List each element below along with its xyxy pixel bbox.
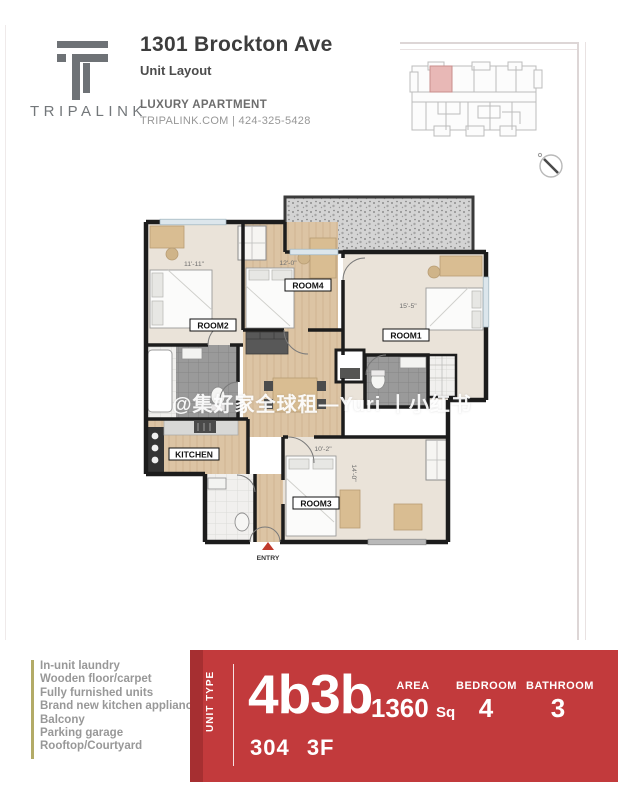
banner-divider [233, 664, 234, 766]
room2-chair [166, 248, 178, 260]
bathroom-stat: BATHROOM 3 [526, 680, 590, 724]
room3-width-dim: 10'-2" [314, 446, 332, 453]
bathroom-label: BATHROOM [526, 680, 590, 692]
left-edge-line [5, 25, 6, 640]
header: 1301 Brockton Ave Unit Layout LUXURY APA… [140, 33, 333, 127]
bathroom1-sink [400, 357, 426, 368]
laundry-label: LNDRY [340, 361, 360, 367]
washer [340, 368, 360, 379]
couch [246, 332, 288, 354]
contact-info: TRIPALINK.COM | 424-325-5428 [140, 115, 333, 127]
bedroom-stat: BEDROOM 4 [456, 680, 516, 724]
stove [194, 421, 216, 433]
room2-label: ROOM2 [197, 321, 228, 331]
room2-dim: 11'-11" [184, 261, 205, 268]
property-address: 1301 Brockton Ave [140, 33, 333, 57]
logo-bar [57, 54, 66, 62]
balcony-slider [290, 249, 338, 255]
bathroom-count: 3 [526, 693, 590, 724]
room4-desk [310, 238, 336, 278]
tagline: LUXURY APARTMENT [140, 99, 333, 111]
amenity-item: Wooden floor/carpet [40, 673, 205, 686]
top-frame-line-inner [400, 49, 578, 50]
room2-window [160, 219, 226, 225]
amenity-item: Fully furnished units [40, 687, 205, 700]
unit-number: 304 3F [250, 735, 335, 761]
area-stat: AREA 1360 Sq [368, 680, 458, 724]
flyer-page: TRIPALINK 1301 Brockton Ave Unit Layout … [0, 0, 618, 800]
logo-bar [83, 63, 90, 93]
amenity-item: Balcony [40, 714, 205, 727]
building-key-map [408, 52, 548, 147]
room3-dresser [340, 490, 360, 528]
bathtub [148, 350, 172, 412]
bedroom-count: 4 [456, 693, 516, 724]
entry-arrow-icon [262, 542, 274, 550]
toilet [235, 513, 249, 531]
amenity-item: Brand new kitchen appliances [40, 700, 205, 713]
amenity-item: In-unit laundry [40, 660, 205, 673]
logo-bar [72, 54, 80, 100]
room1-label: ROOM1 [390, 331, 421, 341]
logo-bar [57, 41, 108, 48]
amenity-item: Parking garage [40, 727, 205, 740]
room4-dim: 12'-0" [279, 260, 297, 267]
room1-window [483, 277, 489, 327]
banner-accent-strip [190, 650, 203, 782]
room3-table [394, 504, 422, 530]
bathroom3-sink [208, 478, 226, 489]
room3-label: ROOM3 [300, 499, 331, 509]
room4-label: ROOM4 [292, 281, 323, 291]
floor-plan: ROOM2 ROOM4 ROOM1 ROOM3 KITCHEN LNDRY 11… [138, 182, 498, 582]
entry-hall-floor [255, 474, 283, 542]
area-value: 1360 Sq [368, 693, 458, 724]
area-label: AREA [368, 680, 458, 692]
room1-desk [440, 256, 482, 276]
kitchen-label: KITCHEN [175, 450, 213, 460]
room2-desk [150, 226, 184, 248]
bedroom-label: BEDROOM [456, 680, 516, 692]
room1-dim: 15'-5" [399, 303, 417, 310]
right-frame-line-inner [585, 42, 586, 640]
bathroom2-sink [182, 348, 202, 359]
page-title: Unit Layout [140, 63, 333, 78]
watermark: @集好家全球租—Yuri 丨小红书 [172, 388, 492, 417]
amenity-item: Rooftop/Courtyard [40, 740, 205, 753]
logo-wordmark: TRIPALINK [30, 103, 140, 120]
area-unit: Sq [436, 704, 455, 721]
tripalink-logo: TRIPALINK [30, 30, 140, 125]
entry-label: ENTRY [257, 555, 280, 562]
area-number: 1360 [371, 693, 429, 723]
highlighted-unit [430, 66, 452, 92]
top-frame-line-outer [400, 42, 579, 44]
unit-info-banner: UNIT TYPE 4b3b AREA 1360 Sq BEDROOM 4 BA… [190, 650, 618, 782]
room3-depth-dim: 14'-0" [350, 464, 357, 482]
amenities-accent-bar [31, 660, 34, 759]
room1-chair [428, 266, 440, 278]
unit-type-value: 4b3b [248, 662, 372, 726]
right-frame-line-outer [577, 42, 579, 640]
room3-window [368, 539, 426, 545]
amenities-list: In-unit laundry Wooden floor/carpet Full… [40, 660, 205, 754]
unit-type-label: UNIT TYPE [205, 667, 216, 735]
compass-icon [527, 144, 571, 188]
